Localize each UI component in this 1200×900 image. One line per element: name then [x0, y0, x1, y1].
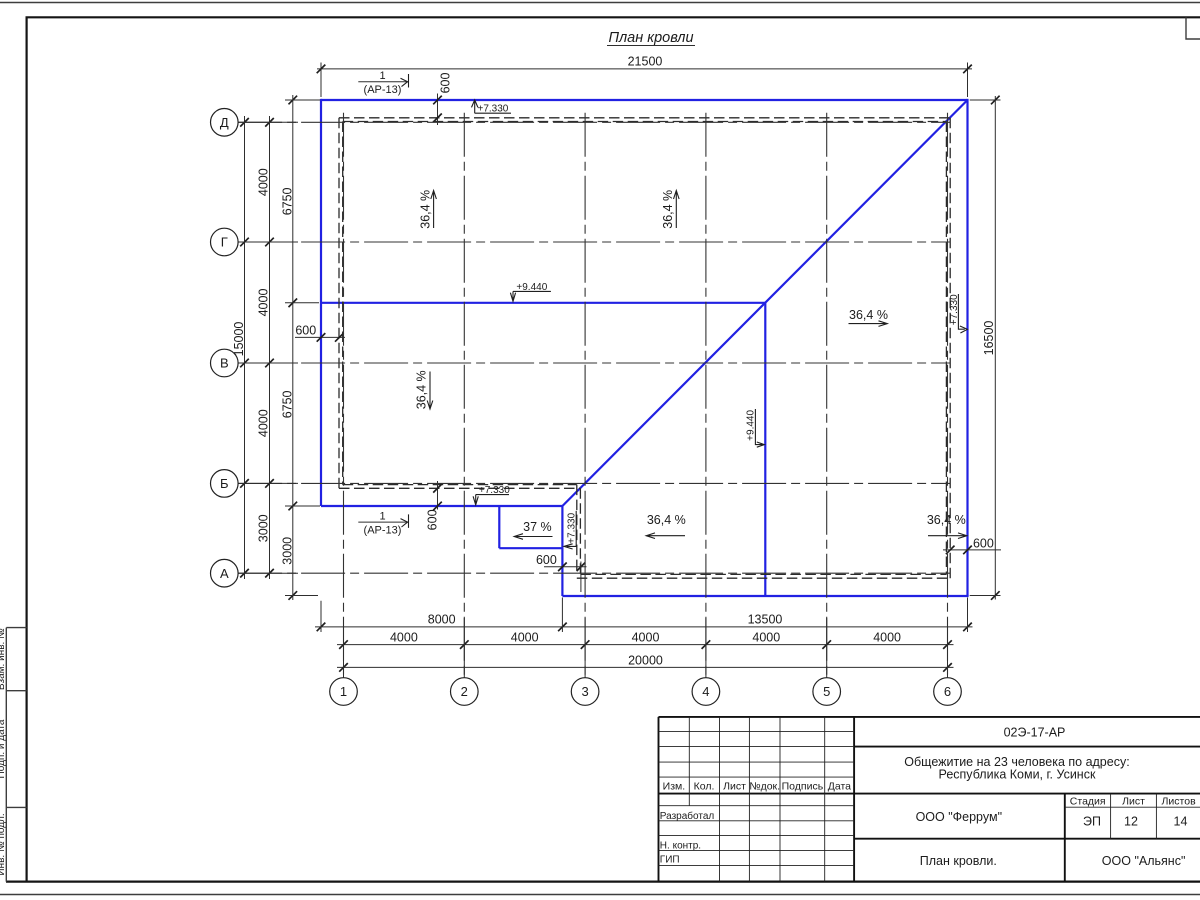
svg-text:4000: 4000 — [390, 630, 418, 644]
svg-text:12: 12 — [1124, 815, 1138, 829]
svg-text:Лист: Лист — [1122, 796, 1145, 808]
svg-text:4000: 4000 — [632, 630, 660, 644]
svg-text:36,4 %: 36,4 % — [415, 370, 429, 409]
svg-text:Листов: Листов — [1162, 796, 1197, 808]
svg-text:15000: 15000 — [232, 322, 246, 357]
svg-text:20000: 20000 — [628, 654, 663, 668]
svg-text:4000: 4000 — [256, 168, 270, 196]
svg-text:План кровли.: План кровли. — [920, 854, 997, 868]
svg-text:Взам. инв. №: Взам. инв. № — [0, 628, 7, 690]
svg-text:8000: 8000 — [428, 613, 456, 627]
svg-text:600: 600 — [973, 536, 994, 550]
svg-text:Дата: Дата — [828, 780, 851, 792]
svg-text:6: 6 — [944, 684, 951, 699]
svg-text:Республика Коми, г. Усинск: Республика Коми, г. Усинск — [939, 768, 1096, 782]
svg-text:4000: 4000 — [873, 630, 901, 644]
svg-text:ООО "Альянс": ООО "Альянс" — [1102, 854, 1186, 868]
svg-text:Б: Б — [220, 476, 229, 491]
svg-text:План кровли: План кровли — [608, 30, 693, 46]
svg-text:Кол.: Кол. — [694, 780, 715, 792]
svg-text:А: А — [220, 566, 229, 581]
svg-text:2: 2 — [461, 684, 468, 699]
svg-text:600: 600 — [438, 73, 452, 94]
svg-text:36,4 %: 36,4 % — [849, 308, 888, 322]
svg-text:600: 600 — [295, 323, 316, 337]
svg-text:02Э-17-АР: 02Э-17-АР — [1004, 726, 1066, 740]
svg-text:4000: 4000 — [256, 409, 270, 437]
svg-text:37 %: 37 % — [523, 520, 552, 534]
svg-text:3000: 3000 — [280, 537, 294, 565]
svg-text:Инв. № подл.: Инв. № подл. — [0, 813, 7, 875]
svg-text:600: 600 — [536, 553, 557, 567]
svg-text:6750: 6750 — [280, 390, 294, 418]
svg-text:3000: 3000 — [256, 514, 270, 542]
svg-text:Изм.: Изм. — [663, 780, 686, 792]
svg-text:1: 1 — [380, 510, 386, 522]
svg-text:3: 3 — [581, 684, 588, 699]
svg-text:6750: 6750 — [280, 187, 294, 215]
svg-text:Лист: Лист — [723, 780, 746, 792]
svg-text:1: 1 — [380, 70, 386, 82]
svg-text:Г: Г — [221, 235, 228, 250]
svg-text:ООО "Феррум": ООО "Феррум" — [916, 810, 1002, 824]
svg-text:36,4 %: 36,4 % — [418, 190, 432, 229]
svg-text:Разработал: Разработал — [660, 810, 715, 822]
svg-text:4: 4 — [702, 684, 709, 699]
svg-text:Подпись: Подпись — [782, 780, 824, 792]
svg-text:16500: 16500 — [982, 321, 996, 356]
svg-text:1: 1 — [340, 684, 347, 699]
svg-text:4000: 4000 — [256, 289, 270, 317]
svg-text:(АР-13): (АР-13) — [364, 525, 402, 537]
svg-text:Н. контр.: Н. контр. — [660, 840, 701, 851]
svg-text:600: 600 — [425, 509, 439, 530]
svg-text:4000: 4000 — [752, 630, 780, 644]
svg-text:+9.440: +9.440 — [746, 410, 757, 441]
svg-text:В: В — [220, 356, 229, 371]
svg-text:36,4 %: 36,4 % — [661, 190, 675, 229]
svg-text:4000: 4000 — [511, 630, 539, 644]
svg-text:№док.: №док. — [749, 780, 780, 792]
svg-text:Стадия: Стадия — [1070, 796, 1106, 808]
svg-text:5: 5 — [823, 684, 830, 699]
svg-text:36,4 %: 36,4 % — [927, 513, 966, 527]
svg-text:36,4 %: 36,4 % — [647, 513, 686, 527]
svg-text:13500: 13500 — [748, 613, 783, 627]
svg-text:21500: 21500 — [628, 54, 663, 68]
svg-text:Подп. и дата: Подп. и дата — [0, 719, 7, 778]
svg-text:ГИП: ГИП — [660, 854, 680, 865]
svg-text:14: 14 — [1174, 815, 1188, 829]
svg-text:Д: Д — [220, 115, 229, 130]
svg-text:(АР-13): (АР-13) — [364, 84, 402, 96]
svg-text:ЭП: ЭП — [1083, 815, 1101, 829]
